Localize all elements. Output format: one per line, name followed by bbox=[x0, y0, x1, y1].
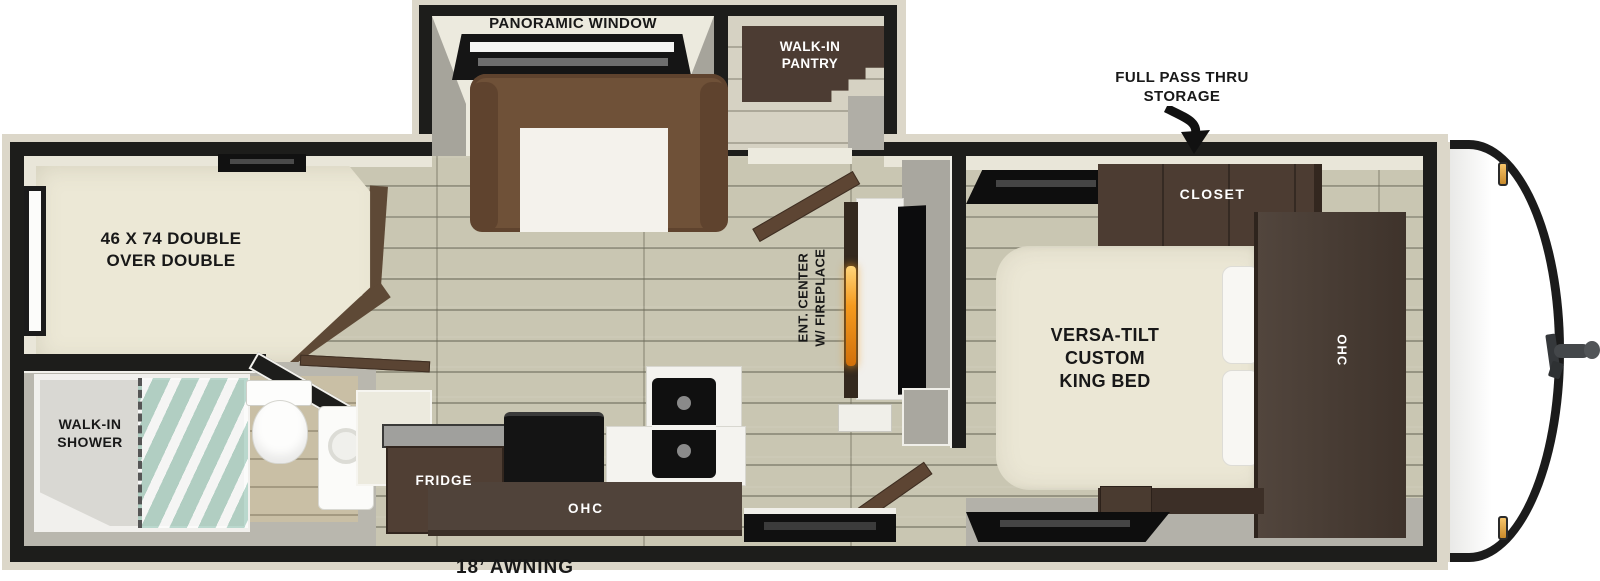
bedroom-bottom-window bbox=[966, 512, 1170, 542]
label-ent-center: ENT. CENTER W/ FIREPLACE bbox=[795, 198, 828, 398]
fridge-top bbox=[382, 424, 508, 448]
marker-light-bottom bbox=[1498, 516, 1508, 540]
shower-glass-door bbox=[138, 378, 248, 528]
label-ohc-kitchen: OHC bbox=[536, 500, 636, 517]
pantry-sidewall bbox=[848, 96, 884, 150]
label-bunk-bed: 46 X 74 DOUBLE OVER DOUBLE bbox=[56, 228, 286, 272]
label-king-bed: VERSA-TILT CUSTOM KING BED bbox=[1010, 324, 1200, 393]
hitch-coupler bbox=[1584, 341, 1600, 359]
label-awning: 18’ AWNING bbox=[420, 556, 610, 580]
toilet-bowl bbox=[252, 400, 308, 464]
bunkroom-top-window-slit bbox=[230, 159, 294, 164]
bedroom-partition-wall bbox=[950, 156, 966, 448]
label-walk-in-shower: WALK-IN SHOWER bbox=[40, 416, 140, 452]
stove bbox=[504, 412, 604, 488]
bathroom-top-wall bbox=[24, 354, 266, 373]
panoramic-window-pane-top bbox=[470, 42, 674, 52]
ent-center-cabinet bbox=[856, 198, 904, 400]
bedroom-bottom-window-slit bbox=[1000, 520, 1130, 527]
sofa-seat-cushion bbox=[520, 128, 668, 232]
label-full-pass-thru-storage: FULL PASS THRU STORAGE bbox=[1092, 68, 1272, 106]
entry-step bbox=[838, 404, 892, 432]
panoramic-window-pane-bottom bbox=[478, 58, 668, 66]
floorplan-canvas: PANORAMIC WINDOW WALK-IN PANTRY FULL PAS… bbox=[0, 0, 1600, 581]
sofa-arm-left bbox=[470, 82, 498, 232]
kitchen-sink-divider bbox=[652, 425, 716, 430]
bedroom-ohc-cabinet bbox=[1254, 212, 1406, 538]
full-pass-thru-arrow bbox=[1152, 106, 1214, 156]
top-doorway bbox=[748, 148, 852, 164]
label-walk-in-pantry: WALK-IN PANTRY bbox=[750, 38, 870, 73]
marker-light-top bbox=[1498, 162, 1508, 186]
label-ohc-bedroom: OHC bbox=[1333, 315, 1350, 385]
label-fridge: FRIDGE bbox=[394, 472, 494, 489]
label-closet: CLOSET bbox=[1140, 186, 1285, 204]
hall-gray-wall bbox=[902, 388, 950, 446]
sink-drain-bottom bbox=[677, 444, 691, 458]
bedroom-top-window-slit bbox=[996, 180, 1096, 187]
sink-drain-top bbox=[677, 396, 691, 410]
tv bbox=[898, 205, 926, 394]
sofa-arm-right bbox=[700, 82, 728, 232]
living-bottom-window-slit bbox=[764, 522, 876, 530]
label-panoramic-window: PANORAMIC WINDOW bbox=[453, 14, 693, 33]
bunkroom-left-window bbox=[24, 186, 46, 336]
fireplace-flame bbox=[846, 266, 856, 366]
